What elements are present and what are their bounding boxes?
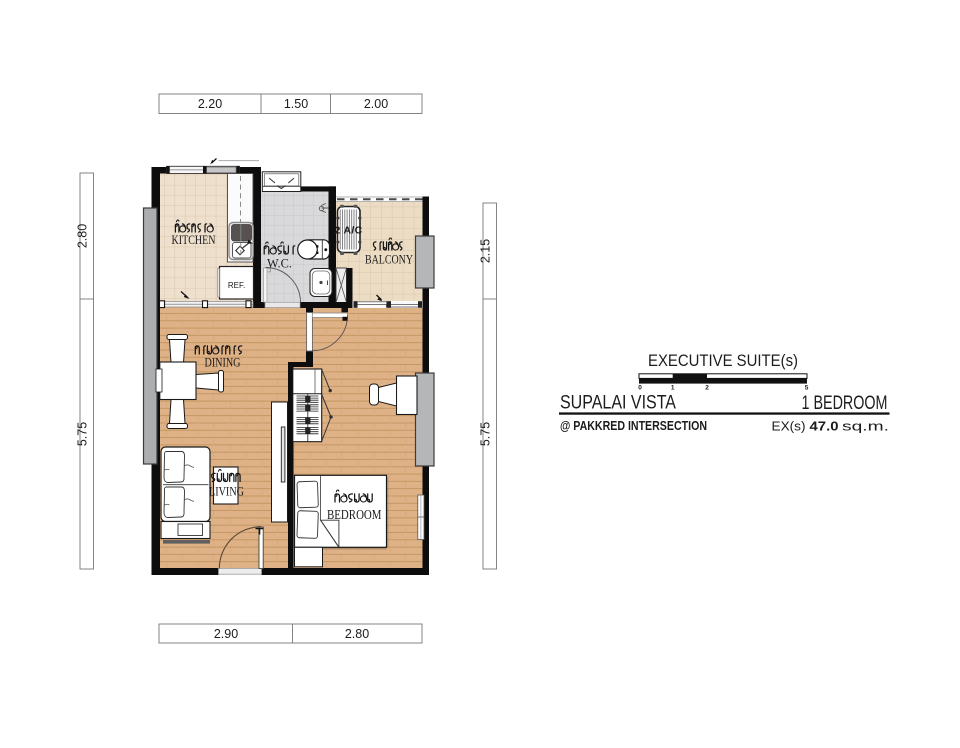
svg-text:0: 0 <box>638 385 642 392</box>
svg-text:DINING: DINING <box>205 355 241 370</box>
svg-text:SUPALAI VISTA: SUPALAI VISTA <box>560 392 676 414</box>
svg-text:@ PAKKRED INTERSECTION: @ PAKKRED INTERSECTION <box>560 419 707 433</box>
svg-text:2.00: 2.00 <box>364 97 388 111</box>
svg-text:EXECUTIVE SUITE(s): EXECUTIVE SUITE(s) <box>648 352 798 370</box>
svg-text:KITCHEN: KITCHEN <box>172 232 216 247</box>
svg-text:5.75: 5.75 <box>76 422 90 446</box>
svg-text:2.15: 2.15 <box>479 239 493 263</box>
svg-text:5.75: 5.75 <box>479 422 493 446</box>
svg-text:47.0: 47.0 <box>810 420 839 434</box>
svg-text:5: 5 <box>805 385 809 392</box>
svg-text:2.20: 2.20 <box>198 97 222 111</box>
svg-text:2.80: 2.80 <box>76 224 90 248</box>
svg-text:1 BEDROOM: 1 BEDROOM <box>802 392 888 414</box>
svg-text:2.80: 2.80 <box>345 627 369 641</box>
svg-text:2: 2 <box>705 385 709 392</box>
svg-text:1: 1 <box>671 385 675 392</box>
svg-text:REF.: REF. <box>228 281 245 290</box>
svg-text:2 A/C: 2 A/C <box>335 225 363 237</box>
svg-text:sq.m.: sq.m. <box>842 420 889 434</box>
svg-text:2.90: 2.90 <box>214 627 238 641</box>
svg-text:BALCONY: BALCONY <box>365 252 413 267</box>
svg-text:BEDROOM: BEDROOM <box>327 507 382 522</box>
svg-text:EX(s): EX(s) <box>772 420 806 434</box>
svg-text:W.C.: W.C. <box>267 256 292 271</box>
svg-text:1.50: 1.50 <box>284 97 308 111</box>
svg-text:LIVING: LIVING <box>209 484 244 499</box>
